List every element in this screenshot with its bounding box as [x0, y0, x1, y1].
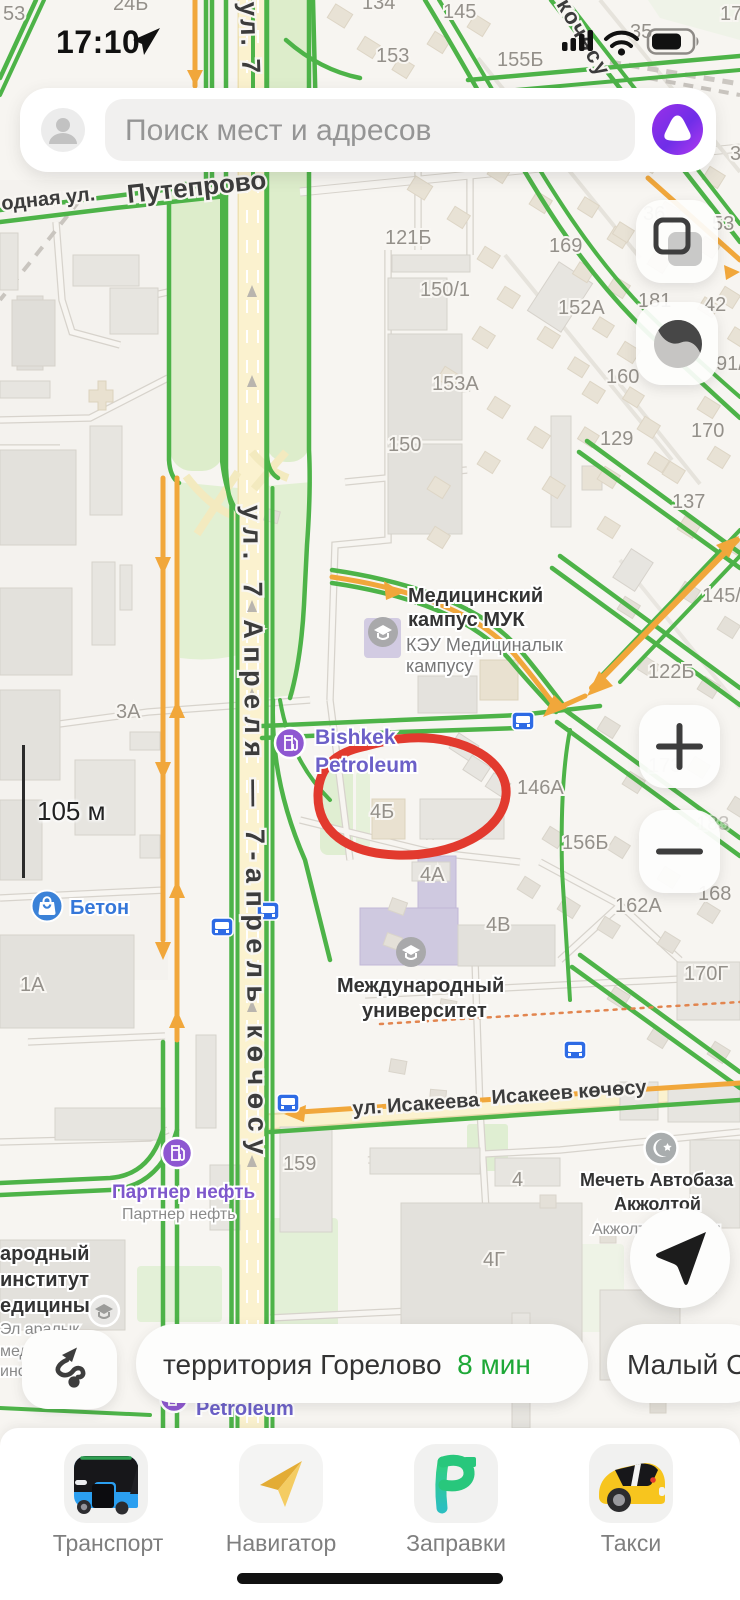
svg-text:4: 4 [512, 1169, 523, 1191]
svg-text:155Б: 155Б [497, 49, 544, 71]
svg-text:Международный: Международный [337, 975, 504, 997]
svg-text:университет: университет [362, 1000, 487, 1022]
svg-text:17: 17 [720, 3, 740, 25]
svg-text:153: 153 [376, 45, 409, 67]
svg-text:1А: 1А [20, 974, 45, 996]
svg-text:170Г: 170Г [684, 963, 728, 985]
svg-text:кампус МУК: кампус МУК [408, 609, 525, 631]
svg-text:121Б: 121Б [385, 227, 432, 249]
svg-text:Партнер нефть: Партнер нефть [112, 1182, 255, 1203]
svg-text:Bishkek: Bishkek [315, 726, 396, 749]
svg-text:156Б: 156Б [562, 832, 609, 854]
svg-text:ародный: ародный [0, 1243, 89, 1265]
svg-text:134: 134 [362, 0, 395, 14]
svg-text:Petroleum: Petroleum [315, 754, 418, 777]
svg-text:159: 159 [283, 1153, 316, 1175]
svg-text:ул. 7: ул. 7 [234, 1, 267, 77]
svg-text:146А: 146А [517, 777, 564, 799]
svg-text:122Б: 122Б [648, 661, 695, 683]
svg-text:4Б: 4Б [370, 801, 394, 823]
svg-text:169: 169 [549, 235, 582, 257]
svg-text:едицины: едицины [0, 1295, 90, 1317]
svg-text:150/1: 150/1 [420, 279, 470, 301]
svg-text:ул. 7 Апреля — 7-апрель көчөсу: ул. 7 Апреля — 7-апрель көчөсу [237, 505, 273, 1162]
svg-text:137: 137 [672, 491, 705, 513]
svg-text:24Б: 24Б [113, 0, 148, 15]
svg-text:институт: институт [0, 1269, 89, 1291]
svg-text:КЭУ Медициналык: КЭУ Медициналык [406, 635, 563, 655]
svg-text:3А: 3А [116, 701, 141, 723]
svg-text:150: 150 [388, 434, 421, 456]
svg-text:4А: 4А [420, 864, 445, 886]
svg-text:Мечеть Автобаза: Мечеть Автобаза [580, 1170, 734, 1190]
svg-text:145/2: 145/2 [702, 585, 740, 607]
svg-text:91/: 91/ [716, 353, 740, 375]
svg-text:4Г: 4Г [483, 1249, 505, 1271]
svg-text:170: 170 [691, 420, 724, 442]
svg-text:Медицинский: Медицинский [408, 585, 543, 607]
svg-text:Партнер нефть: Партнер нефть [122, 1206, 236, 1223]
svg-text:Бетон: Бетон [70, 897, 129, 919]
svg-text:153А: 153А [432, 373, 479, 395]
svg-text:3: 3 [730, 143, 740, 165]
svg-text:162А: 162А [615, 895, 662, 917]
svg-text:53: 53 [3, 3, 25, 25]
svg-text:145: 145 [443, 1, 476, 23]
svg-text:кампусу: кампусу [406, 656, 473, 676]
svg-text:129: 129 [600, 428, 633, 450]
svg-text:152А: 152А [558, 297, 605, 319]
svg-text:160: 160 [606, 366, 639, 388]
svg-text:4В: 4В [486, 914, 510, 936]
